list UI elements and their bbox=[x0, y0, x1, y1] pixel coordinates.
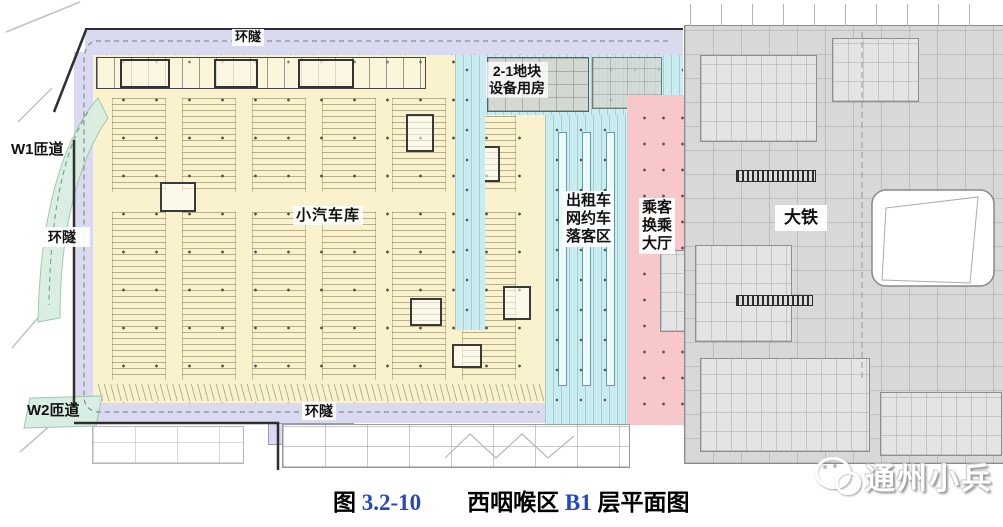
rail-track-strip bbox=[736, 295, 813, 306]
rail-room-block bbox=[700, 358, 870, 452]
stair-core bbox=[410, 298, 442, 326]
label-ring-tunnel-bottom: 环隧 bbox=[302, 402, 336, 420]
dropoff-platform-island bbox=[582, 132, 591, 386]
watermark: 通州小兵 bbox=[813, 453, 993, 499]
stair-core bbox=[452, 344, 482, 368]
parking-stalls bbox=[252, 212, 306, 380]
rail-room-block bbox=[880, 392, 1002, 456]
label-ramp-w2: W2匝道 bbox=[24, 401, 83, 420]
label-taxi-dropoff: 出租车 网约车 落客区 bbox=[563, 191, 614, 247]
parking-stalls bbox=[252, 98, 306, 192]
label-ring-tunnel-left: 环隧 bbox=[40, 227, 90, 247]
watermark-text: 通州小兵 bbox=[865, 454, 993, 498]
figure-west-throat-b1-plan: 环隧 W1匝道 环隧 小汽车库 出租车 网约车 落客区 乘客 换乘 大厅 2-1… bbox=[0, 0, 1003, 527]
parking-stalls bbox=[322, 98, 376, 192]
parking-stalls bbox=[112, 98, 166, 192]
parking-stalls bbox=[322, 212, 376, 380]
label-equipment-room: 2-1地块 设备用房 bbox=[486, 62, 548, 98]
garage-edge-stalls bbox=[96, 384, 544, 401]
label-transfer-hall: 乘客 换乘 大厅 bbox=[639, 198, 675, 254]
dropoff-platform-island bbox=[606, 132, 615, 386]
label-car-garage: 小汽车库 bbox=[293, 206, 363, 225]
garage-room bbox=[214, 59, 258, 88]
label-mainline-rail: 大铁 bbox=[775, 205, 827, 231]
stair-core bbox=[406, 114, 434, 152]
parking-stalls bbox=[112, 212, 166, 380]
rail-track-strip bbox=[736, 170, 816, 182]
label-ramp-w1: W1匝道 bbox=[8, 140, 67, 159]
zone-ring-tunnel-top bbox=[85, 28, 683, 57]
parking-stalls bbox=[182, 98, 236, 192]
basement-rooms-strip-left bbox=[92, 426, 244, 464]
caption-level-accent: B1 bbox=[565, 490, 592, 515]
grid-tick-marks bbox=[690, 4, 1000, 26]
hall-side-room bbox=[660, 250, 685, 332]
caption-number-accent: 3.2-10 bbox=[362, 490, 421, 515]
floor-plan: 环隧 W1匝道 环隧 小汽车库 出租车 网约车 落客区 乘客 换乘 大厅 2-1… bbox=[0, 0, 1003, 470]
stair-core bbox=[160, 182, 196, 212]
rail-room-block bbox=[700, 55, 817, 142]
dropoff-platform-island bbox=[558, 132, 567, 386]
garage-room bbox=[120, 59, 170, 88]
caption-title: 西咽喉区 B1 层平面图 bbox=[467, 483, 689, 517]
basement-rooms-strip bbox=[282, 424, 630, 468]
wechat-logo-icon bbox=[813, 453, 857, 499]
rail-room-block bbox=[832, 38, 919, 102]
stair-core bbox=[503, 286, 531, 320]
parking-stalls bbox=[182, 212, 236, 380]
zone-taxi-dropoff-finger bbox=[455, 115, 485, 330]
rail-room-block bbox=[695, 245, 792, 342]
caption-figure-number: 图 3.2-10 bbox=[333, 483, 421, 517]
label-ring-tunnel-top: 环隧 bbox=[232, 29, 264, 46]
garage-room bbox=[298, 59, 354, 88]
parking-stalls bbox=[392, 212, 446, 380]
